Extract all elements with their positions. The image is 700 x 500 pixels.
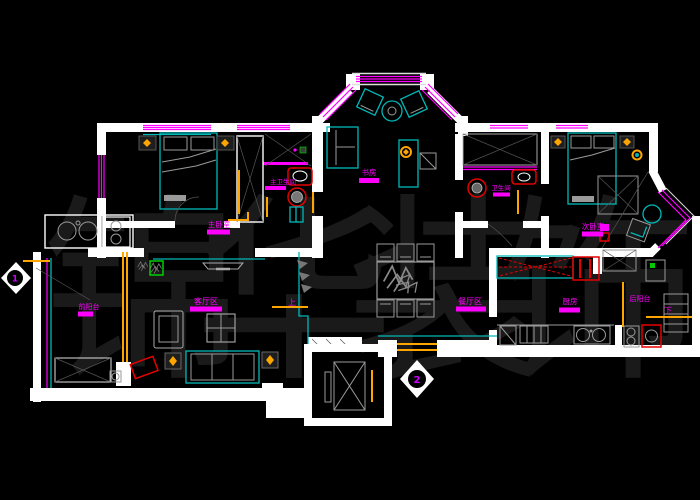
back-balcony-label: 后阳台 — [630, 294, 651, 303]
front-balcony-label: 前阳台 — [79, 302, 100, 311]
dining-area-label: 餐厅区 — [458, 297, 482, 306]
elevation-marker-2-label: 2 — [414, 375, 421, 386]
bathroom-label: 卫生间 — [491, 183, 511, 192]
study-label: 书房 — [362, 167, 377, 177]
master-bathroom-label: 主卫生间 — [270, 177, 296, 186]
stair-down-label: 下 — [664, 306, 672, 315]
cad-canvas: 锦华装饰 — [0, 0, 700, 500]
stair-up-label: 上 — [288, 298, 296, 307]
second-bedroom-label: 次卧室 — [582, 221, 605, 231]
kitchen-label: 厨房 — [563, 296, 578, 306]
master-bedroom-label: 主卧室 — [208, 219, 231, 229]
elevation-marker-1-label: 1 — [12, 275, 18, 285]
living-area-label: 客厅区 — [194, 296, 218, 306]
elevation-marker-1: 1 — [1, 262, 31, 294]
